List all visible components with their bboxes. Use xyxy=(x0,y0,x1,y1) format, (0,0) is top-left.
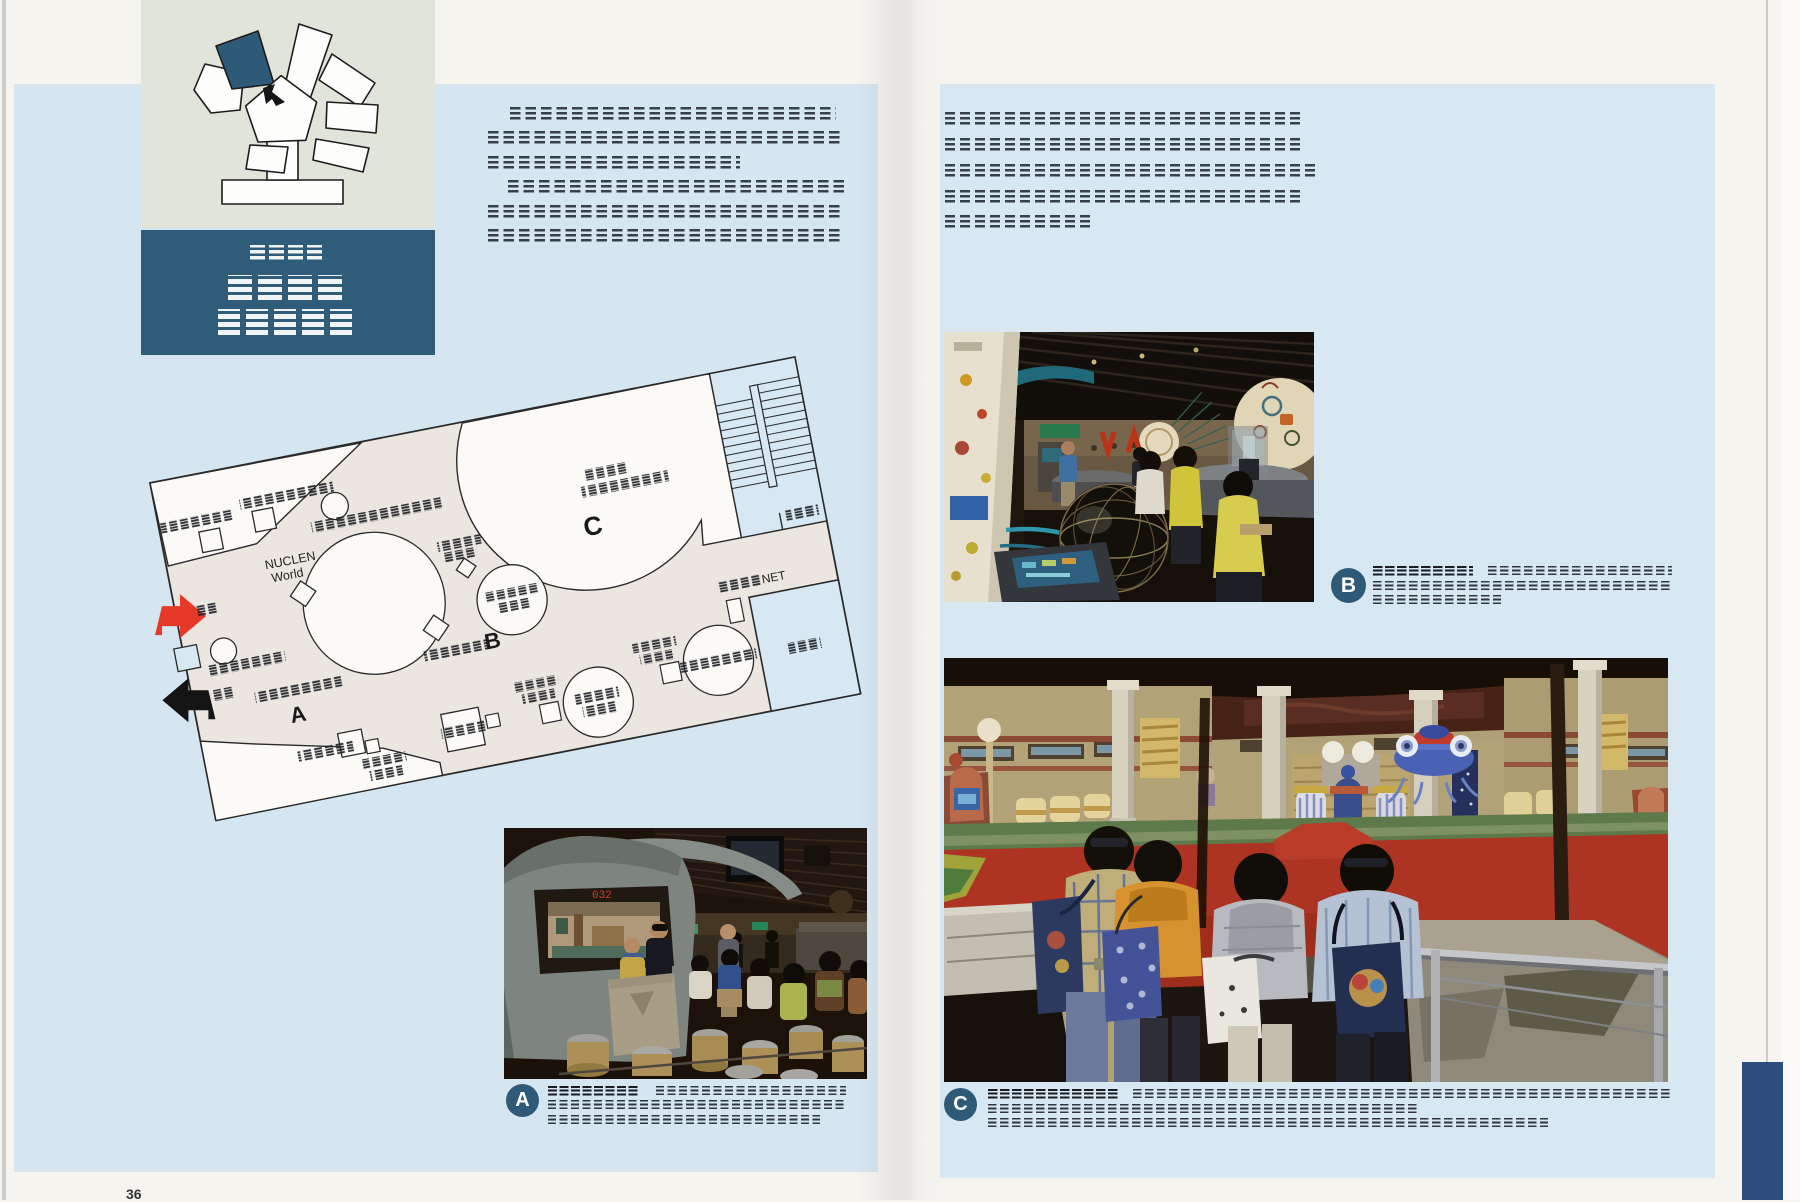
svg-text:032: 032 xyxy=(592,890,612,902)
